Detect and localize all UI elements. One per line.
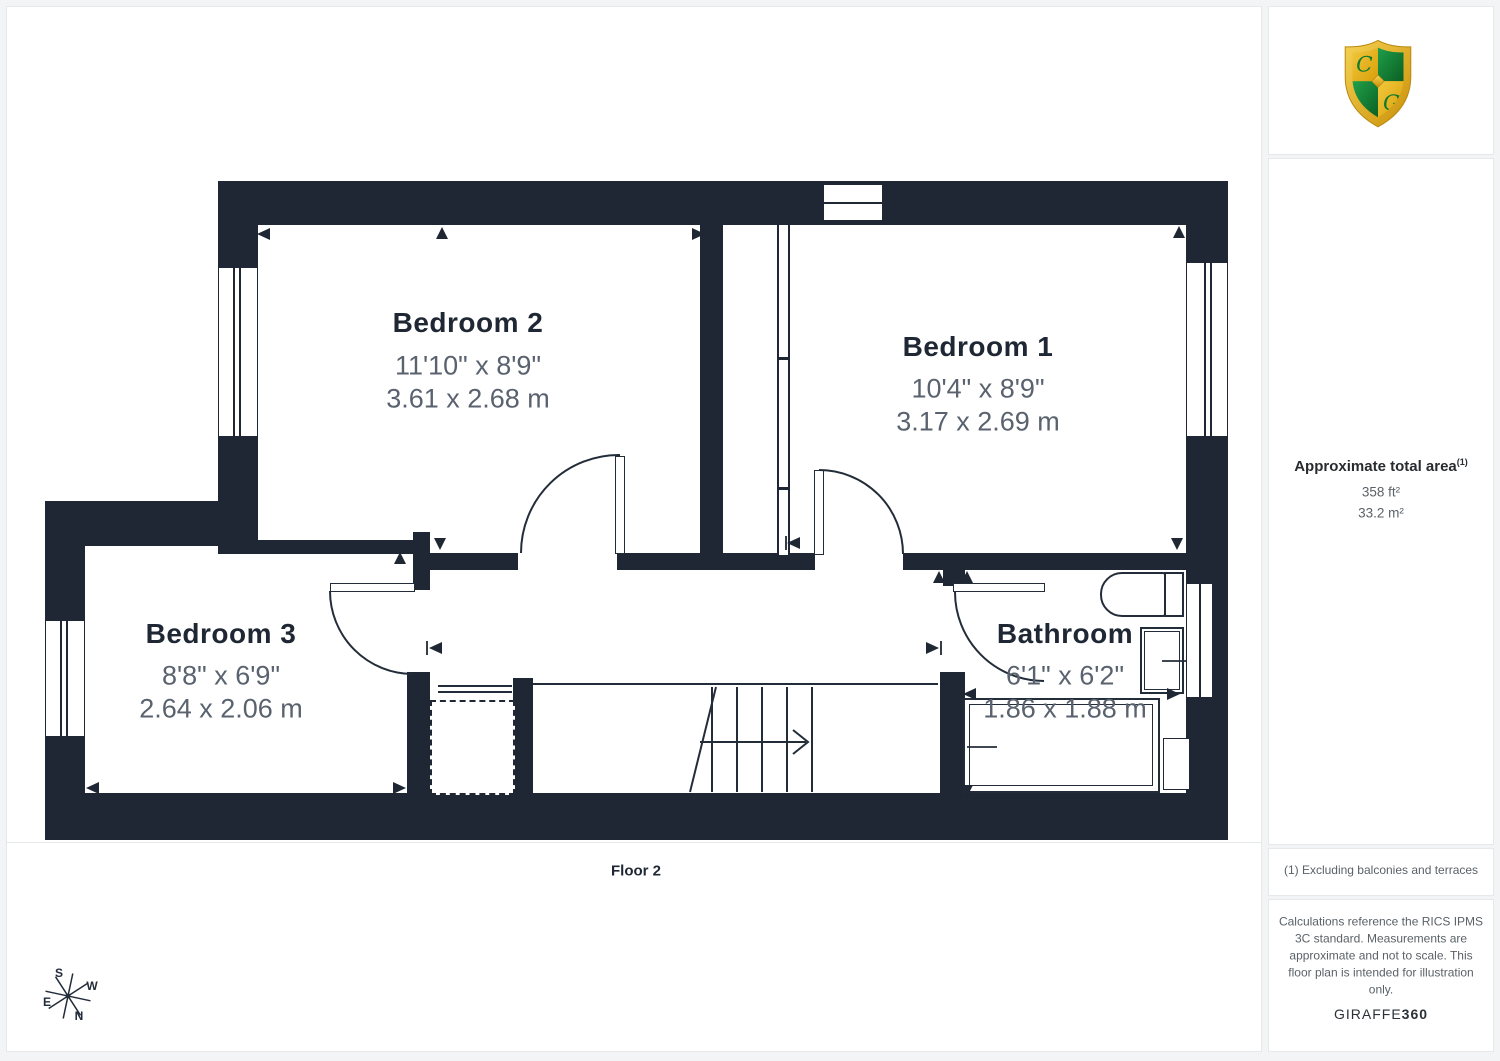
partition-joint: [777, 487, 790, 490]
floor-plan-page: Bedroom 2 11'10" x 8'9" 3.61 x 2.68 m Be…: [0, 0, 1500, 1061]
compass-east: E: [43, 995, 51, 1009]
chimney-divider: [824, 202, 882, 204]
window-mullion: [239, 267, 241, 437]
crest-initial-top: C: [1356, 53, 1373, 78]
window-mullion: [1199, 583, 1201, 698]
understairs-cupboard: [430, 700, 515, 795]
floor-label: Floor 2: [611, 863, 661, 880]
total-area-metric: 33.2 m²: [1358, 506, 1404, 521]
room-label-bedroom2: Bedroom 2: [393, 307, 544, 339]
window-bathroom: [1186, 583, 1213, 698]
window-bedroom1: [1186, 262, 1228, 437]
brand-name: GIRAFFE: [1334, 1006, 1402, 1022]
window-mullion: [60, 620, 62, 737]
window-mullion: [1210, 262, 1212, 437]
wall-bedroom3-door-stub: [413, 532, 430, 590]
agency-crest-logo: C G: [1338, 38, 1418, 130]
room-size-imperial-bathroom: 6'1" x 6'2": [1006, 661, 1124, 692]
window-mullion: [233, 267, 235, 437]
wall-niche: [1163, 738, 1190, 790]
room-size-metric-bedroom3: 2.64 x 2.06 m: [139, 694, 303, 725]
plan-footer-divider: [7, 842, 1261, 843]
wall-bedroom-divider: [700, 225, 723, 570]
sink-basin: [1144, 631, 1180, 690]
wall-step: [45, 501, 223, 546]
footnote-text: (1) Excluding balconies and terraces: [1284, 863, 1478, 877]
toilet-bowl: [1100, 572, 1166, 617]
room-label-bedroom1: Bedroom 1: [903, 331, 1054, 363]
door-leaf-bedroom3: [330, 583, 415, 592]
door-leaf-bedroom1: [814, 470, 824, 555]
door-leaf-bedroom2: [615, 456, 625, 554]
wall-top: [218, 181, 1228, 225]
brand-logo: GIRAFFE360: [1334, 1006, 1428, 1022]
room-size-imperial-bedroom1: 10'4" x 8'9": [911, 374, 1044, 405]
disclaimer-text: Calculations reference the RICS IPMS 3C …: [1277, 914, 1485, 999]
window-bedroom3: [45, 620, 85, 737]
total-area-panel: [1268, 158, 1494, 845]
brand-suffix: 360: [1402, 1006, 1428, 1022]
stud-partition: [777, 225, 790, 555]
room-label-bathroom: Bathroom: [997, 618, 1133, 650]
room-size-imperial-bedroom3: 8'8" x 6'9": [162, 661, 280, 692]
room-size-metric-bathroom: 1.86 x 1.88 m: [983, 694, 1147, 725]
door-leaf-bathroom: [953, 583, 1045, 592]
room-size-metric-bedroom2: 3.61 x 2.68 m: [386, 384, 550, 415]
window-mullion: [66, 620, 68, 737]
wall-bedroom3-top: [218, 540, 430, 554]
total-area-footnote-marker: (1): [1457, 457, 1468, 467]
wall-stairs-stub: [513, 678, 533, 793]
room-size-metric-bedroom1: 3.17 x 2.69 m: [896, 407, 1060, 438]
compass-north: N: [75, 1009, 84, 1023]
total-area-imperial: 358 ft²: [1362, 485, 1400, 500]
wall-landing-b: [617, 553, 815, 570]
sink: [1140, 627, 1184, 694]
window-bedroom2: [218, 267, 258, 437]
chimney-breast: [822, 183, 884, 222]
toilet-cistern: [1164, 572, 1184, 617]
total-area-title: Approximate total area(1): [1294, 457, 1468, 475]
compass-west: W: [86, 979, 97, 993]
room-size-imperial-bedroom2: 11'10" x 8'9": [395, 351, 541, 382]
window-mullion: [1204, 262, 1206, 437]
compass-south: S: [55, 966, 63, 980]
wall-landing-c: [903, 553, 1228, 570]
total-area-title-text: Approximate total area: [1294, 458, 1457, 475]
wall-bottom: [45, 793, 1228, 840]
wall-bathroom-left: [940, 672, 965, 793]
wall-bedroom3-right: [407, 672, 430, 793]
room-label-bedroom3: Bedroom 3: [146, 618, 297, 650]
partition-joint: [777, 357, 790, 360]
